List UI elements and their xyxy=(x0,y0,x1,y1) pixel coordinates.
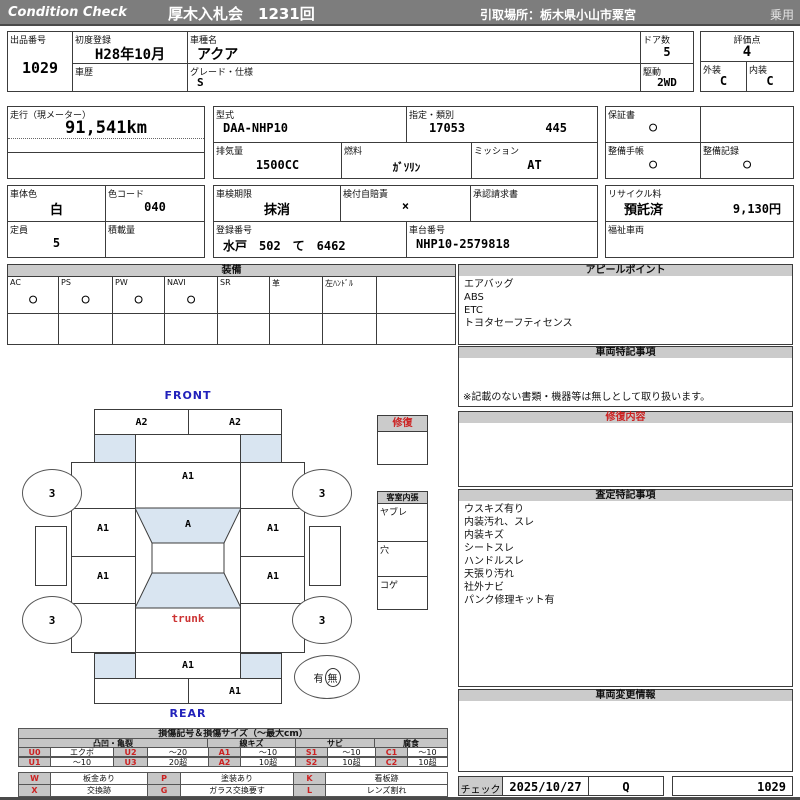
cabin-row-burn: コゲ xyxy=(377,576,428,610)
capacity-cell: 定員 5 xyxy=(7,221,106,258)
reg-no-cell: 登録番号 水戸 502 て 6462 xyxy=(213,221,407,258)
rear-bumper-right-panel: A1 xyxy=(188,678,282,704)
chassis-no-value: NHP10-2579818 xyxy=(407,237,597,251)
cabin-row-tear: ヤブレ xyxy=(377,503,428,542)
recycle-status: 預託済 xyxy=(624,199,663,218)
assessment-body: ウスキズ有り 内装汚れ、スレ 内装キズ シートスレ ハンドルスレ 天張り汚れ 社… xyxy=(458,501,793,687)
equipment-pw-cell: PW ○ xyxy=(112,276,165,314)
door-rear-left-mark: A1 xyxy=(75,568,131,584)
equipment-ac-cell: AC ○ xyxy=(7,276,59,314)
mileage-solid-divider xyxy=(8,152,204,153)
equipment-empty-row-8 xyxy=(376,313,456,345)
equipment-ps-label: PS xyxy=(61,278,71,287)
legend-val-s1: ～10 xyxy=(327,747,376,757)
color-code-value: 040 xyxy=(106,200,204,214)
score-value: 4 xyxy=(701,44,793,60)
cabin-row-hole: 穴 xyxy=(377,541,428,577)
equipment-empty-row-7 xyxy=(322,313,377,345)
class-code-cell: 指定・類別 17053 445 xyxy=(406,106,598,143)
spare-absent-option-circled: 無 xyxy=(325,668,341,687)
mileage-cell: 走行（現メーター） 91,541km xyxy=(7,106,205,179)
equipment-lhd-label: 左ﾊﾝﾄﾞﾙ xyxy=(325,278,353,289)
exhibit-no-label: 出品番号 xyxy=(10,33,46,46)
wheel-rear-left: 3 xyxy=(22,596,82,644)
equipment-leather-label: 革 xyxy=(272,278,280,289)
inspector-cell: Q xyxy=(588,776,664,796)
assessment-line: ウスキズ有り xyxy=(464,503,787,516)
equipment-empty-row-4 xyxy=(164,313,218,345)
legend-code-a2: A2 xyxy=(208,757,241,767)
first-reg-value: H28年10月 xyxy=(73,44,187,64)
grade-cell: グレード・仕様 S xyxy=(187,63,641,92)
front-bumper-right-mark: A2 xyxy=(229,417,241,428)
left-fender-door-line xyxy=(71,508,135,509)
legend-val-u0: エクボ xyxy=(50,747,114,757)
auction-sheet: Condition Check 厚木入札会 1231回 引取場所：栃木県小山市粟… xyxy=(0,0,800,800)
legend-val-a1: ～10 xyxy=(240,747,296,757)
equipment-empty-row-3 xyxy=(112,313,165,345)
history-label: 車歴 xyxy=(75,65,93,78)
interior-grade-cell: 内装 C xyxy=(746,61,794,92)
equipment-ps-mark: ○ xyxy=(59,292,112,307)
model-code-label: 型式 xyxy=(216,108,234,121)
exterior-grade-value: C xyxy=(701,74,746,88)
front-bumper-right-panel: A2 xyxy=(188,409,282,435)
welfare-label: 福祉車両 xyxy=(608,223,644,236)
model-code-cell: 型式 DAA-NHP10 xyxy=(213,106,407,143)
rear-bumper-right-mark: A1 xyxy=(229,686,241,697)
chassis-no-label: 車台番号 xyxy=(409,223,445,236)
rear-bumper-left-panel xyxy=(94,678,189,704)
sheet-no-cell: 1029 xyxy=(672,776,793,796)
cabin-row-tear-label: ヤブレ xyxy=(380,505,407,518)
legend-val-c1: ～10 xyxy=(407,747,448,757)
legend-val-u1: ～10 xyxy=(50,757,114,767)
equipment-empty-row-6 xyxy=(269,313,323,345)
wheel-rear-right: 3 xyxy=(292,596,352,644)
legend-code-s2: S2 xyxy=(295,757,328,767)
check-label: チェック xyxy=(459,781,502,796)
equipment-ac-label: AC xyxy=(10,278,21,287)
approval-cell: 承認請求書 xyxy=(470,185,598,222)
auction-title: 厚木入札会 1231回 xyxy=(168,3,315,24)
vehicle-notes-body: ※記載のない書類・機器等は無しとして取り扱います。 xyxy=(458,358,793,407)
mileage-value: 91,541km xyxy=(8,118,204,138)
warranty-blank-cell xyxy=(700,106,794,143)
displacement-label: 排気量 xyxy=(216,144,243,157)
roof-shape xyxy=(152,543,224,573)
drive-value: 2WD xyxy=(641,76,693,89)
appeal-line: トヨタセーフティセンス xyxy=(464,317,787,330)
class-code-value1: 17053 xyxy=(429,121,465,135)
sheet-no: 1029 xyxy=(673,780,792,794)
legend-val-u3: 20超 xyxy=(147,757,209,767)
legend-val-g: ガラス交換要す xyxy=(180,784,294,797)
displacement-value: 1500CC xyxy=(214,158,341,172)
wheel-front-right-mark: 3 xyxy=(319,487,326,500)
hood-mark: A1 xyxy=(157,468,219,484)
mission-cell: ミッション AT xyxy=(471,142,598,179)
equipment-navi-cell: NAVI ○ xyxy=(164,276,218,314)
legend-val-x: 交換跡 xyxy=(50,784,148,797)
rear-direction-label: REAR xyxy=(158,707,218,720)
equipment-extra-cell xyxy=(376,276,456,314)
appeal-line: ETC xyxy=(464,304,787,317)
warranty-cell: 保証書 ○ xyxy=(605,106,701,143)
equipment-navi-mark: ○ xyxy=(165,292,217,307)
maint-book-label: 整備手帳 xyxy=(608,144,644,157)
wheel-rear-right-mark: 3 xyxy=(319,614,326,627)
capacity-label: 定員 xyxy=(10,223,28,236)
header-bar: Condition Check 厚木入札会 1231回 引取場所：栃木県小山市粟… xyxy=(0,0,800,26)
legend-code-u0: U0 xyxy=(18,747,51,757)
insurance-cell: 検付自賠責 × xyxy=(340,185,471,222)
door-front-right-mark: A1 xyxy=(245,520,301,536)
right-fender-door-line xyxy=(241,508,305,509)
reg-no-value: 水戸 502 て 6462 xyxy=(214,237,406,254)
check-date-cell: 2025/10/27 xyxy=(502,776,589,796)
drive-cell: 駆動 2WD xyxy=(640,63,694,92)
equipment-lhd-cell: 左ﾊﾝﾄﾞﾙ xyxy=(322,276,377,314)
body-color-cell: 車体色 白 xyxy=(7,185,106,222)
wheel-rear-left-mark: 3 xyxy=(49,614,56,627)
legend-code-u2: U2 xyxy=(113,747,148,757)
fuel-value: ｶﾞｿﾘﾝ xyxy=(342,159,471,175)
maint-record-label: 整備記録 xyxy=(703,144,739,157)
recycle-cell: リサイクル料 預託済 9,130円 xyxy=(605,185,794,222)
fuel-label: 燃料 xyxy=(344,144,362,157)
equipment-pw-mark: ○ xyxy=(113,292,164,307)
front-direction-label: FRONT xyxy=(158,389,218,402)
class-code-value2: 445 xyxy=(545,121,567,135)
assessment-line: 内装汚れ、スレ xyxy=(464,516,787,529)
wheel-front-left-mark: 3 xyxy=(49,487,56,500)
equipment-sr-label: SR xyxy=(220,278,231,287)
recycle-fee: 9,130円 xyxy=(733,200,781,217)
warranty-mark: ○ xyxy=(606,120,700,135)
check-label-cell: チェック xyxy=(458,776,503,796)
wheel-front-right: 3 xyxy=(292,469,352,517)
model-name-cell: 車種名 アクア xyxy=(187,31,641,64)
vehicle-notes-disclaimer: ※記載のない書類・機器等は無しとして取り扱います。 xyxy=(463,391,710,404)
load-label: 積載量 xyxy=(108,223,135,236)
equipment-leather-cell: 革 xyxy=(269,276,323,314)
repair-detail-body xyxy=(458,423,793,487)
legend-code-u1: U1 xyxy=(18,757,51,767)
equipment-ac-mark: ○ xyxy=(8,292,58,307)
interior-grade-value: C xyxy=(747,74,793,88)
history-cell: 車歴 xyxy=(72,63,188,92)
brand-logo: Condition Check xyxy=(8,5,127,20)
assessment-line: 社外ナビ xyxy=(464,581,787,594)
approval-label: 承認請求書 xyxy=(473,187,518,200)
legend-code-s1: S1 xyxy=(295,747,328,757)
pickup-location: 引取場所：栃木県小山市粟宮 xyxy=(480,6,636,23)
equipment-ps-cell: PS ○ xyxy=(58,276,113,314)
displacement-cell: 排気量 1500CC xyxy=(213,142,342,179)
class-code-label: 指定・類別 xyxy=(409,108,454,121)
exhibit-no-value: 1029 xyxy=(8,59,72,77)
windshield-mark: A xyxy=(157,514,219,534)
legend-val-s2: 10超 xyxy=(327,757,376,767)
rear-panel-mark: A1 xyxy=(135,655,241,675)
cabin-row-burn-label: コゲ xyxy=(380,578,398,591)
legend-val-a2: 10超 xyxy=(240,757,296,767)
cabin-row-hole-label: 穴 xyxy=(380,543,389,556)
inspection-cell: 車検期限 抹消 xyxy=(213,185,341,222)
doors-value: 5 xyxy=(641,45,693,59)
appeal-body: エアバッグ ABS ETC トヨタセーフティセンス xyxy=(458,276,793,345)
assessment-line: パンク修理キット有 xyxy=(464,594,787,607)
rear-corner-right-panel xyxy=(240,653,282,679)
spare-tire-indicator: 有 無 xyxy=(294,655,360,699)
front-bumper-left-panel: A2 xyxy=(94,409,189,435)
equipment-empty-row-1 xyxy=(7,313,59,345)
mileage-dotted-divider xyxy=(8,138,204,139)
fuel-cell: 燃料 ｶﾞｿﾘﾝ xyxy=(341,142,472,179)
legend-code-g: G xyxy=(147,784,181,797)
door-rear-right-mark: A1 xyxy=(245,568,301,584)
right-door-door-line xyxy=(241,556,305,557)
trunk-label: trunk xyxy=(157,612,219,625)
legend-val-c2: 10超 xyxy=(407,757,448,767)
equipment-pw-label: PW xyxy=(115,278,128,287)
appeal-line: エアバッグ xyxy=(464,278,787,291)
appeal-line: ABS xyxy=(464,291,787,304)
exterior-grade-cell: 外装 C xyxy=(700,61,747,92)
repair-mini-box-header: 修復 xyxy=(377,415,428,432)
assessment-line: ハンドルスレ xyxy=(464,555,787,568)
repair-mini-box-body xyxy=(377,431,428,465)
legend-code-l: L xyxy=(293,784,326,797)
exhibit-no-cell: 出品番号 1029 xyxy=(7,31,73,92)
maint-record-cell: 整備記録 ○ xyxy=(700,142,794,179)
front-corner-right-panel xyxy=(240,434,282,463)
equipment-sr-cell: SR xyxy=(217,276,270,314)
rear-window-shape xyxy=(135,573,241,608)
left-door-fender-line xyxy=(71,603,135,604)
change-info-body xyxy=(458,701,793,772)
equipment-navi-label: NAVI xyxy=(167,278,186,287)
legend-code-u3: U3 xyxy=(113,757,148,767)
inspector-code: Q xyxy=(589,780,663,794)
legend-code-x: X xyxy=(18,784,51,797)
insurance-mark: × xyxy=(341,199,470,213)
legend-code-c1: C1 xyxy=(375,747,408,757)
front-bumper-left-mark: A2 xyxy=(135,417,147,428)
wheel-front-left: 3 xyxy=(22,469,82,517)
grade-value: S xyxy=(188,76,640,89)
legend-code-c2: C2 xyxy=(375,757,408,767)
maint-book-mark: ○ xyxy=(606,157,700,172)
legend-code-a1: A1 xyxy=(208,747,241,757)
equipment-empty-row-2 xyxy=(58,313,113,345)
capacity-value: 5 xyxy=(8,236,105,250)
maint-record-mark: ○ xyxy=(701,157,793,172)
mission-value: AT xyxy=(472,158,597,172)
door-front-left-mark: A1 xyxy=(75,520,131,536)
assessment-line: シートスレ xyxy=(464,542,787,555)
legend-val-l: レンズ割れ xyxy=(325,784,448,797)
inspection-value: 抹消 xyxy=(214,199,340,218)
reg-no-label: 登録番号 xyxy=(216,223,252,236)
model-name-value: アクア xyxy=(188,44,640,64)
spare-present-option: 有 xyxy=(314,670,324,685)
mission-label: ミッション xyxy=(474,144,519,157)
color-code-label: 色コード xyxy=(108,187,144,200)
color-code-cell: 色コード 040 xyxy=(105,185,205,222)
equipment-empty-row-5 xyxy=(217,313,270,345)
welfare-cell: 福祉車両 xyxy=(605,221,794,258)
doors-cell: ドア数 5 xyxy=(640,31,694,64)
assessment-line: 内装キズ xyxy=(464,529,787,542)
right-sill-panel xyxy=(309,526,341,586)
left-sill-panel xyxy=(35,526,67,586)
maint-book-cell: 整備手帳 ○ xyxy=(605,142,701,179)
vehicle-class: 乗用 xyxy=(770,6,794,23)
chassis-no-cell: 車台番号 NHP10-2579818 xyxy=(406,221,598,258)
load-cell: 積載量 xyxy=(105,221,205,258)
legend-val-u2: ～20 xyxy=(147,747,209,757)
rear-corner-left-panel xyxy=(94,653,136,679)
left-door-door-line xyxy=(71,556,135,557)
first-reg-cell: 初度登録 H28年10月 xyxy=(72,31,188,64)
body-color-value: 白 xyxy=(8,199,105,218)
score-cell: 評価点 4 xyxy=(700,31,794,62)
check-date: 2025/10/27 xyxy=(503,780,588,794)
right-door-fender-line xyxy=(241,603,305,604)
front-corner-left-panel xyxy=(94,434,136,463)
model-code-value: DAA-NHP10 xyxy=(214,121,406,135)
assessment-line: 天張り汚れ xyxy=(464,568,787,581)
